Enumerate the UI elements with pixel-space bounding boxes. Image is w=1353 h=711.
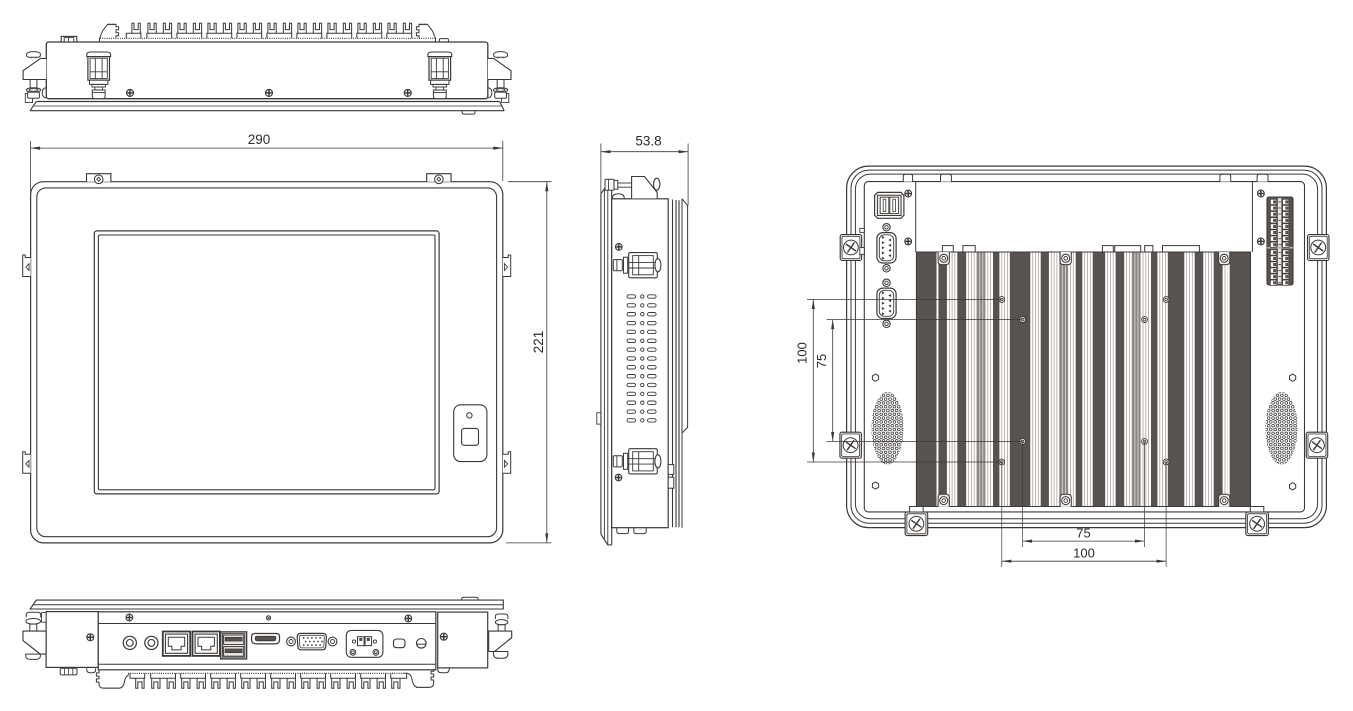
svg-text:75: 75 xyxy=(1076,526,1090,541)
svg-text:100: 100 xyxy=(795,342,810,364)
svg-text:53.8: 53.8 xyxy=(635,134,661,149)
svg-text:290: 290 xyxy=(248,132,271,147)
svg-text:75: 75 xyxy=(814,354,829,368)
svg-text:100: 100 xyxy=(1073,546,1095,561)
svg-text:221: 221 xyxy=(531,331,546,354)
